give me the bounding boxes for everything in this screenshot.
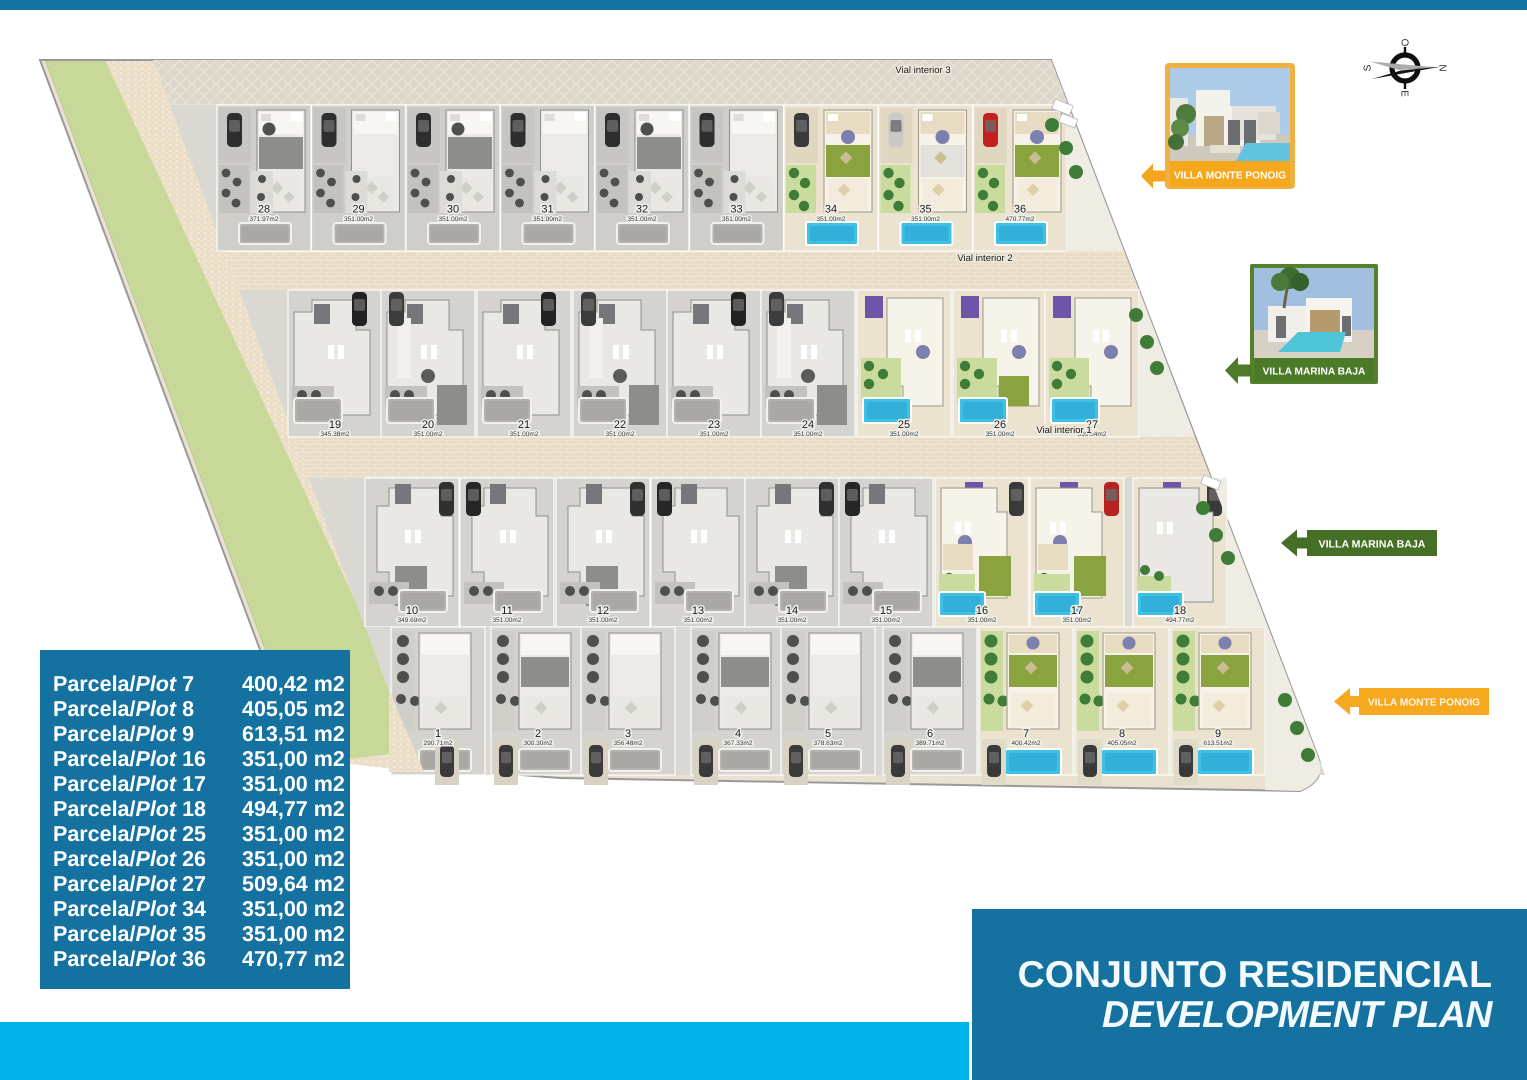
svg-text:351,00 m2: 351,00 m2 bbox=[242, 747, 345, 771]
svg-text:4: 4 bbox=[735, 728, 741, 740]
svg-text:3: 3 bbox=[625, 728, 631, 740]
svg-text:351.00m2: 351.00m2 bbox=[778, 617, 807, 624]
svg-text:6: 6 bbox=[927, 728, 933, 740]
svg-text:36: 36 bbox=[1014, 204, 1026, 216]
svg-text:33: 33 bbox=[730, 204, 742, 216]
svg-text:Vial interior 3: Vial interior 3 bbox=[895, 65, 950, 76]
svg-text:9: 9 bbox=[1215, 728, 1221, 740]
svg-text:351.00m2: 351.00m2 bbox=[533, 216, 562, 223]
svg-text:389.71m2: 389.71m2 bbox=[916, 740, 945, 747]
svg-text:470,77 m2: 470,77 m2 bbox=[242, 947, 345, 971]
svg-text:351.00m2: 351.00m2 bbox=[968, 617, 997, 624]
svg-text:CONJUNTO RESIDENCIAL: CONJUNTO RESIDENCIAL bbox=[1018, 953, 1492, 995]
svg-text:351,00 m2: 351,00 m2 bbox=[242, 772, 345, 796]
svg-text:24: 24 bbox=[802, 419, 814, 431]
svg-text:VILLA MARINA BAJA: VILLA MARINA BAJA bbox=[1319, 539, 1426, 551]
svg-text:Parcela/Plot 7: Parcela/Plot 7 bbox=[53, 672, 194, 696]
svg-text:351.00m2: 351.00m2 bbox=[414, 431, 443, 438]
svg-text:351.00m2: 351.00m2 bbox=[493, 617, 522, 624]
svg-text:494.77m2: 494.77m2 bbox=[1166, 617, 1195, 624]
svg-text:Parcela/Plot 36: Parcela/Plot 36 bbox=[53, 947, 206, 971]
svg-text:351.00m2: 351.00m2 bbox=[986, 431, 1015, 438]
svg-text:Parcela/Plot 9: Parcela/Plot 9 bbox=[53, 722, 194, 746]
svg-text:351.00m2: 351.00m2 bbox=[722, 216, 751, 223]
svg-text:N: N bbox=[1437, 64, 1448, 71]
svg-text:405.05m2: 405.05m2 bbox=[1108, 740, 1137, 747]
svg-text:Vial interior 1: Vial interior 1 bbox=[1036, 425, 1091, 436]
svg-text:351.00m2: 351.00m2 bbox=[589, 617, 618, 624]
svg-text:345.38m2: 345.38m2 bbox=[321, 431, 350, 438]
svg-text:Parcela/Plot 26: Parcela/Plot 26 bbox=[53, 847, 206, 871]
svg-text:10: 10 bbox=[406, 605, 418, 617]
svg-text:351,00 m2: 351,00 m2 bbox=[242, 897, 345, 921]
svg-text:34: 34 bbox=[825, 204, 837, 216]
svg-text:VILLA MONTE PONOIG: VILLA MONTE PONOIG bbox=[1174, 171, 1286, 182]
svg-text:VILLA MONTE PONOIG: VILLA MONTE PONOIG bbox=[1368, 698, 1480, 709]
svg-text:Parcela/Plot 17: Parcela/Plot 17 bbox=[53, 772, 206, 796]
svg-text:Parcela/Plot 35: Parcela/Plot 35 bbox=[53, 922, 206, 946]
svg-text:S: S bbox=[1363, 64, 1374, 71]
svg-text:35: 35 bbox=[919, 204, 931, 216]
svg-text:371.97m2: 371.97m2 bbox=[250, 216, 279, 223]
svg-text:Parcela/Plot 27: Parcela/Plot 27 bbox=[53, 872, 206, 896]
svg-text:O: O bbox=[1401, 38, 1412, 46]
svg-text:17: 17 bbox=[1071, 605, 1083, 617]
svg-text:351,00 m2: 351,00 m2 bbox=[242, 922, 345, 946]
svg-text:28: 28 bbox=[258, 204, 270, 216]
svg-text:300.30m2: 300.30m2 bbox=[524, 740, 553, 747]
svg-text:7: 7 bbox=[1023, 728, 1029, 740]
svg-text:21: 21 bbox=[518, 419, 530, 431]
svg-text:23: 23 bbox=[708, 419, 720, 431]
svg-text:351.00m2: 351.00m2 bbox=[628, 216, 657, 223]
svg-text:12: 12 bbox=[597, 605, 609, 617]
svg-text:351,00 m2: 351,00 m2 bbox=[242, 847, 345, 871]
svg-text:400,42 m2: 400,42 m2 bbox=[242, 672, 345, 696]
svg-text:30: 30 bbox=[447, 204, 459, 216]
svg-text:5: 5 bbox=[825, 728, 831, 740]
svg-text:351.00m2: 351.00m2 bbox=[510, 431, 539, 438]
svg-text:613.51m2: 613.51m2 bbox=[1204, 740, 1233, 747]
svg-text:E: E bbox=[1399, 90, 1410, 97]
svg-text:26: 26 bbox=[994, 419, 1006, 431]
svg-text:290.71m2: 290.71m2 bbox=[424, 740, 453, 747]
svg-text:351.00m2: 351.00m2 bbox=[439, 216, 468, 223]
svg-text:16: 16 bbox=[976, 605, 988, 617]
svg-text:509,64 m2: 509,64 m2 bbox=[242, 872, 345, 896]
svg-text:351.00m2: 351.00m2 bbox=[890, 431, 919, 438]
svg-text:Parcela/Plot 18: Parcela/Plot 18 bbox=[53, 797, 206, 821]
svg-text:25: 25 bbox=[898, 419, 910, 431]
svg-text:29: 29 bbox=[352, 204, 364, 216]
svg-text:2: 2 bbox=[535, 728, 541, 740]
svg-text:Vial interior 2: Vial interior 2 bbox=[957, 253, 1012, 264]
svg-text:13: 13 bbox=[692, 605, 704, 617]
svg-text:351.00m2: 351.00m2 bbox=[794, 431, 823, 438]
svg-text:351.00m2: 351.00m2 bbox=[1063, 617, 1092, 624]
svg-text:351.00m2: 351.00m2 bbox=[700, 431, 729, 438]
svg-text:VILLA MARINA BAJA: VILLA MARINA BAJA bbox=[1263, 367, 1366, 378]
svg-text:18: 18 bbox=[1174, 605, 1186, 617]
svg-text:351.00m2: 351.00m2 bbox=[872, 617, 901, 624]
svg-text:22: 22 bbox=[614, 419, 626, 431]
svg-text:20: 20 bbox=[422, 419, 434, 431]
svg-text:378.63m2: 378.63m2 bbox=[814, 740, 843, 747]
svg-text:494,77 m2: 494,77 m2 bbox=[242, 797, 345, 821]
svg-text:DEVELOPMENT PLAN: DEVELOPMENT PLAN bbox=[1102, 993, 1493, 1035]
svg-text:32: 32 bbox=[636, 204, 648, 216]
svg-text:351.00m2: 351.00m2 bbox=[344, 216, 373, 223]
svg-text:14: 14 bbox=[786, 605, 798, 617]
svg-text:Parcela/Plot 25: Parcela/Plot 25 bbox=[53, 822, 206, 846]
svg-text:Parcela/Plot 16: Parcela/Plot 16 bbox=[53, 747, 206, 771]
svg-text:405,05 m2: 405,05 m2 bbox=[242, 697, 345, 721]
svg-text:351.00m2: 351.00m2 bbox=[606, 431, 635, 438]
svg-text:11: 11 bbox=[501, 605, 512, 617]
svg-text:1: 1 bbox=[435, 728, 441, 740]
svg-text:349.69m2: 349.69m2 bbox=[398, 617, 427, 624]
svg-text:15: 15 bbox=[880, 605, 892, 617]
svg-text:351.00m2: 351.00m2 bbox=[684, 617, 713, 624]
svg-text:613,51 m2: 613,51 m2 bbox=[242, 722, 345, 746]
svg-text:Parcela/Plot 8: Parcela/Plot 8 bbox=[53, 697, 194, 721]
svg-text:400.42m2: 400.42m2 bbox=[1012, 740, 1041, 747]
svg-text:31: 31 bbox=[541, 204, 553, 216]
svg-text:356.48m2: 356.48m2 bbox=[614, 740, 643, 747]
svg-text:19: 19 bbox=[329, 419, 341, 431]
svg-text:367.33m2: 367.33m2 bbox=[724, 740, 753, 747]
svg-text:351,00 m2: 351,00 m2 bbox=[242, 822, 345, 846]
svg-text:Parcela/Plot 34: Parcela/Plot 34 bbox=[53, 897, 206, 921]
svg-text:8: 8 bbox=[1119, 728, 1125, 740]
